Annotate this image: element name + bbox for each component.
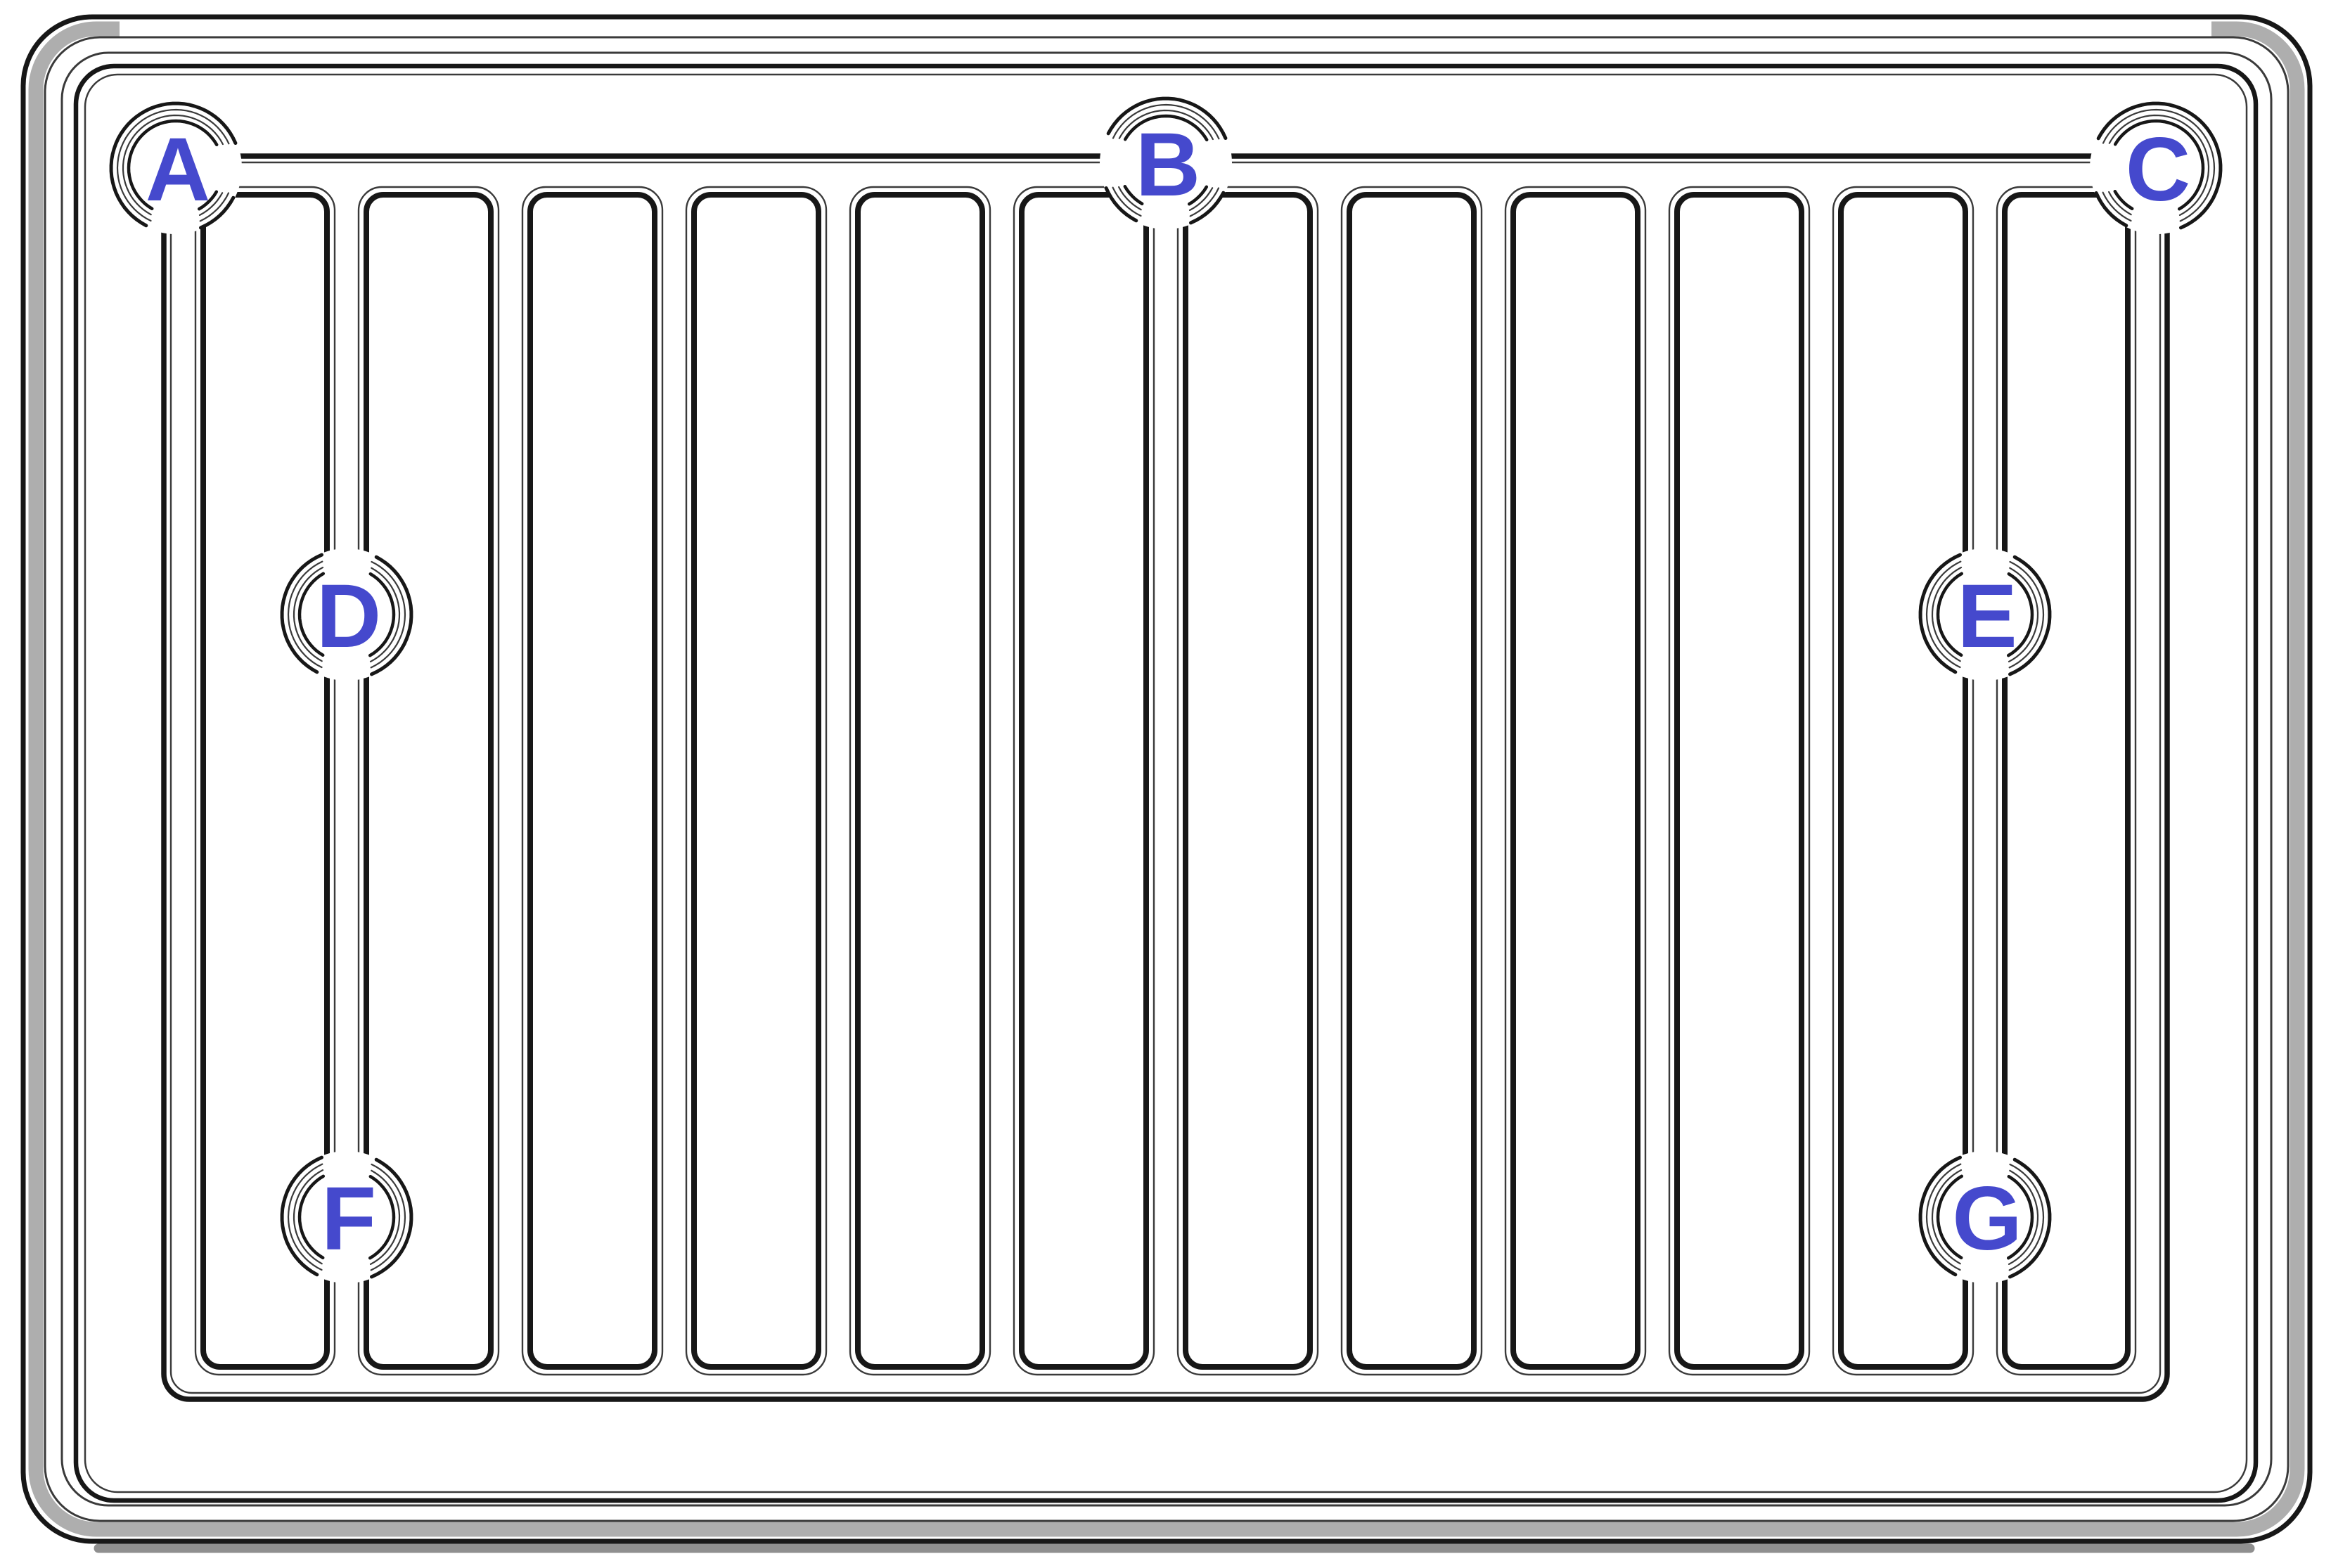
label-A: A bbox=[146, 120, 210, 220]
slot-7 bbox=[1186, 195, 1310, 1367]
label-C: C bbox=[2126, 120, 2190, 220]
label-B: B bbox=[1136, 115, 1200, 215]
plate-top-face-highlight bbox=[120, 20, 2211, 37]
cad-drawing-canvas: ABCDEFG bbox=[0, 0, 2331, 1568]
slot-4 bbox=[694, 195, 818, 1367]
slot-6 bbox=[1022, 195, 1146, 1367]
label-G: G bbox=[1952, 1169, 2022, 1269]
slot-3 bbox=[530, 195, 655, 1367]
slot-8 bbox=[1349, 195, 1474, 1367]
slot-10 bbox=[1677, 195, 1802, 1367]
slot-9 bbox=[1513, 195, 1638, 1367]
label-E: E bbox=[1957, 566, 2017, 667]
slot-5 bbox=[858, 195, 982, 1367]
label-D: D bbox=[316, 566, 381, 667]
vent-plate-drawing: ABCDEFG bbox=[0, 0, 2331, 1568]
label-F: F bbox=[321, 1169, 376, 1269]
